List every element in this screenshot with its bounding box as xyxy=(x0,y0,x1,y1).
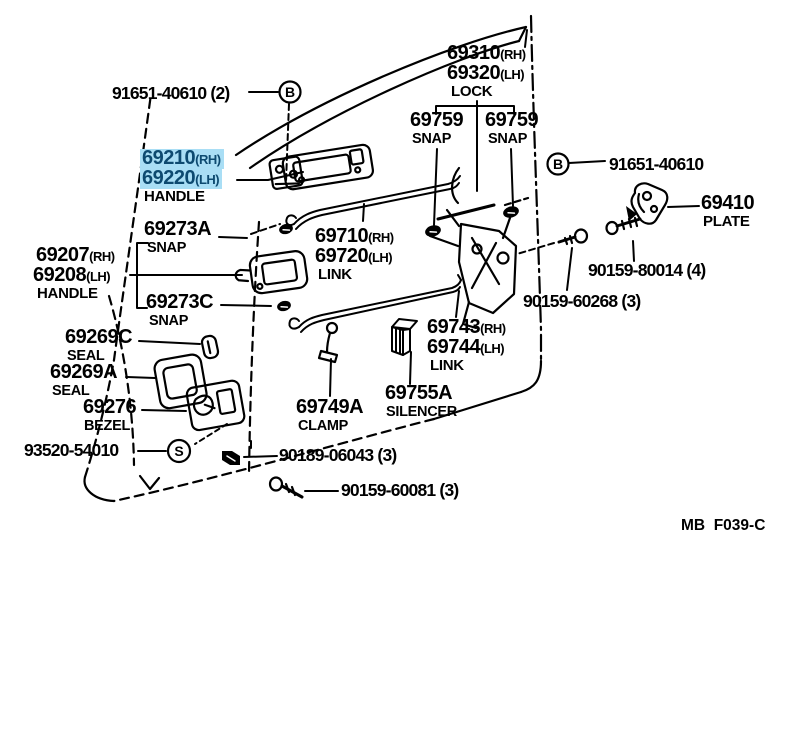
callout-seal-a: 69269A SEAL xyxy=(50,363,117,399)
inner-handle-drawing xyxy=(233,250,308,296)
callout-plate: 69410 PLATE xyxy=(701,194,754,230)
callout-screw-93520: 93520-54010 xyxy=(24,441,118,460)
circle-b-top: B xyxy=(280,82,301,103)
lock-name: LOCK xyxy=(451,84,526,100)
callout-snap-759-1: 69759 SNAP xyxy=(410,111,463,147)
seal-c-drawing xyxy=(201,335,219,359)
figure-code: MB F039-C xyxy=(681,517,765,535)
screw-60081-drawing xyxy=(270,478,302,498)
outer-handle-rh-row[interactable]: 69210(RH) xyxy=(140,149,224,169)
circle-b-top-letter: B xyxy=(285,84,295,100)
callout-link-lower: 69743(RH) 69744(LH) LINK xyxy=(427,318,506,374)
diagram-line-art: B B S xyxy=(0,0,800,730)
callout-clamp: 69749A CLAMP xyxy=(296,398,363,434)
callout-inner-handle: 69207(RH) 69208(LH) HANDLE xyxy=(33,246,115,302)
callout-seal-c: 69269C SEAL xyxy=(65,328,132,364)
silencer-drawing xyxy=(392,319,417,355)
snap-759-2-drawing xyxy=(502,205,520,220)
snap-c-drawing xyxy=(276,299,292,312)
callout-outer-handle-highlighted[interactable]: 69210(RH) 69220(LH) HANDLE xyxy=(140,149,224,205)
callout-screw-60268: 90159-60268 (3) xyxy=(523,292,640,311)
clamp-drawing xyxy=(319,323,337,362)
circle-s: S xyxy=(168,440,190,462)
outer-handle-name: HANDLE xyxy=(144,189,224,205)
circle-s-letter: S xyxy=(174,443,183,459)
callout-bezel: 69276 BEZEL xyxy=(83,398,136,434)
callout-screw-80014: 90159-80014 (4) xyxy=(588,261,705,280)
parts-diagram: B B S xyxy=(0,0,800,730)
circle-b-right-letter: B xyxy=(553,156,563,172)
callout-snap-c: 69273C SNAP xyxy=(146,293,213,329)
grommet-drawing xyxy=(222,451,240,465)
snap-759-1-drawing xyxy=(424,224,442,239)
circle-b-right: B xyxy=(548,154,569,175)
lock-rh-row: 69310(RH) xyxy=(447,44,526,64)
bezel-drawing xyxy=(186,380,246,432)
callout-snap-759-2: 69759 SNAP xyxy=(485,111,538,147)
screw-60268-drawing xyxy=(559,230,587,245)
callout-grommet: 90189-06043 (3) xyxy=(279,446,396,465)
callout-link-upper: 69710(RH) 69720(LH) LINK xyxy=(315,227,394,283)
screw-80014-drawing xyxy=(607,218,641,234)
outer-handle-drawing xyxy=(269,144,374,190)
callout-silencer: 69755A SILENCER xyxy=(385,384,457,420)
callout-bolt-top: 91651-40610 (2) xyxy=(112,84,229,103)
callout-screw-60081: 90159-60081 (3) xyxy=(341,481,458,500)
plate-drawing xyxy=(626,183,667,223)
outer-handle-lh-row[interactable]: 69220(LH) xyxy=(140,169,222,189)
lock-lh-row: 69320(LH) xyxy=(447,64,524,84)
callout-lock: 69310(RH) 69320(LH) LOCK xyxy=(447,44,526,100)
callout-bolt-right: 91651-40610 xyxy=(609,155,703,174)
callout-snap-a: 69273A SNAP xyxy=(144,220,211,256)
seal-a-drawing xyxy=(153,353,208,409)
